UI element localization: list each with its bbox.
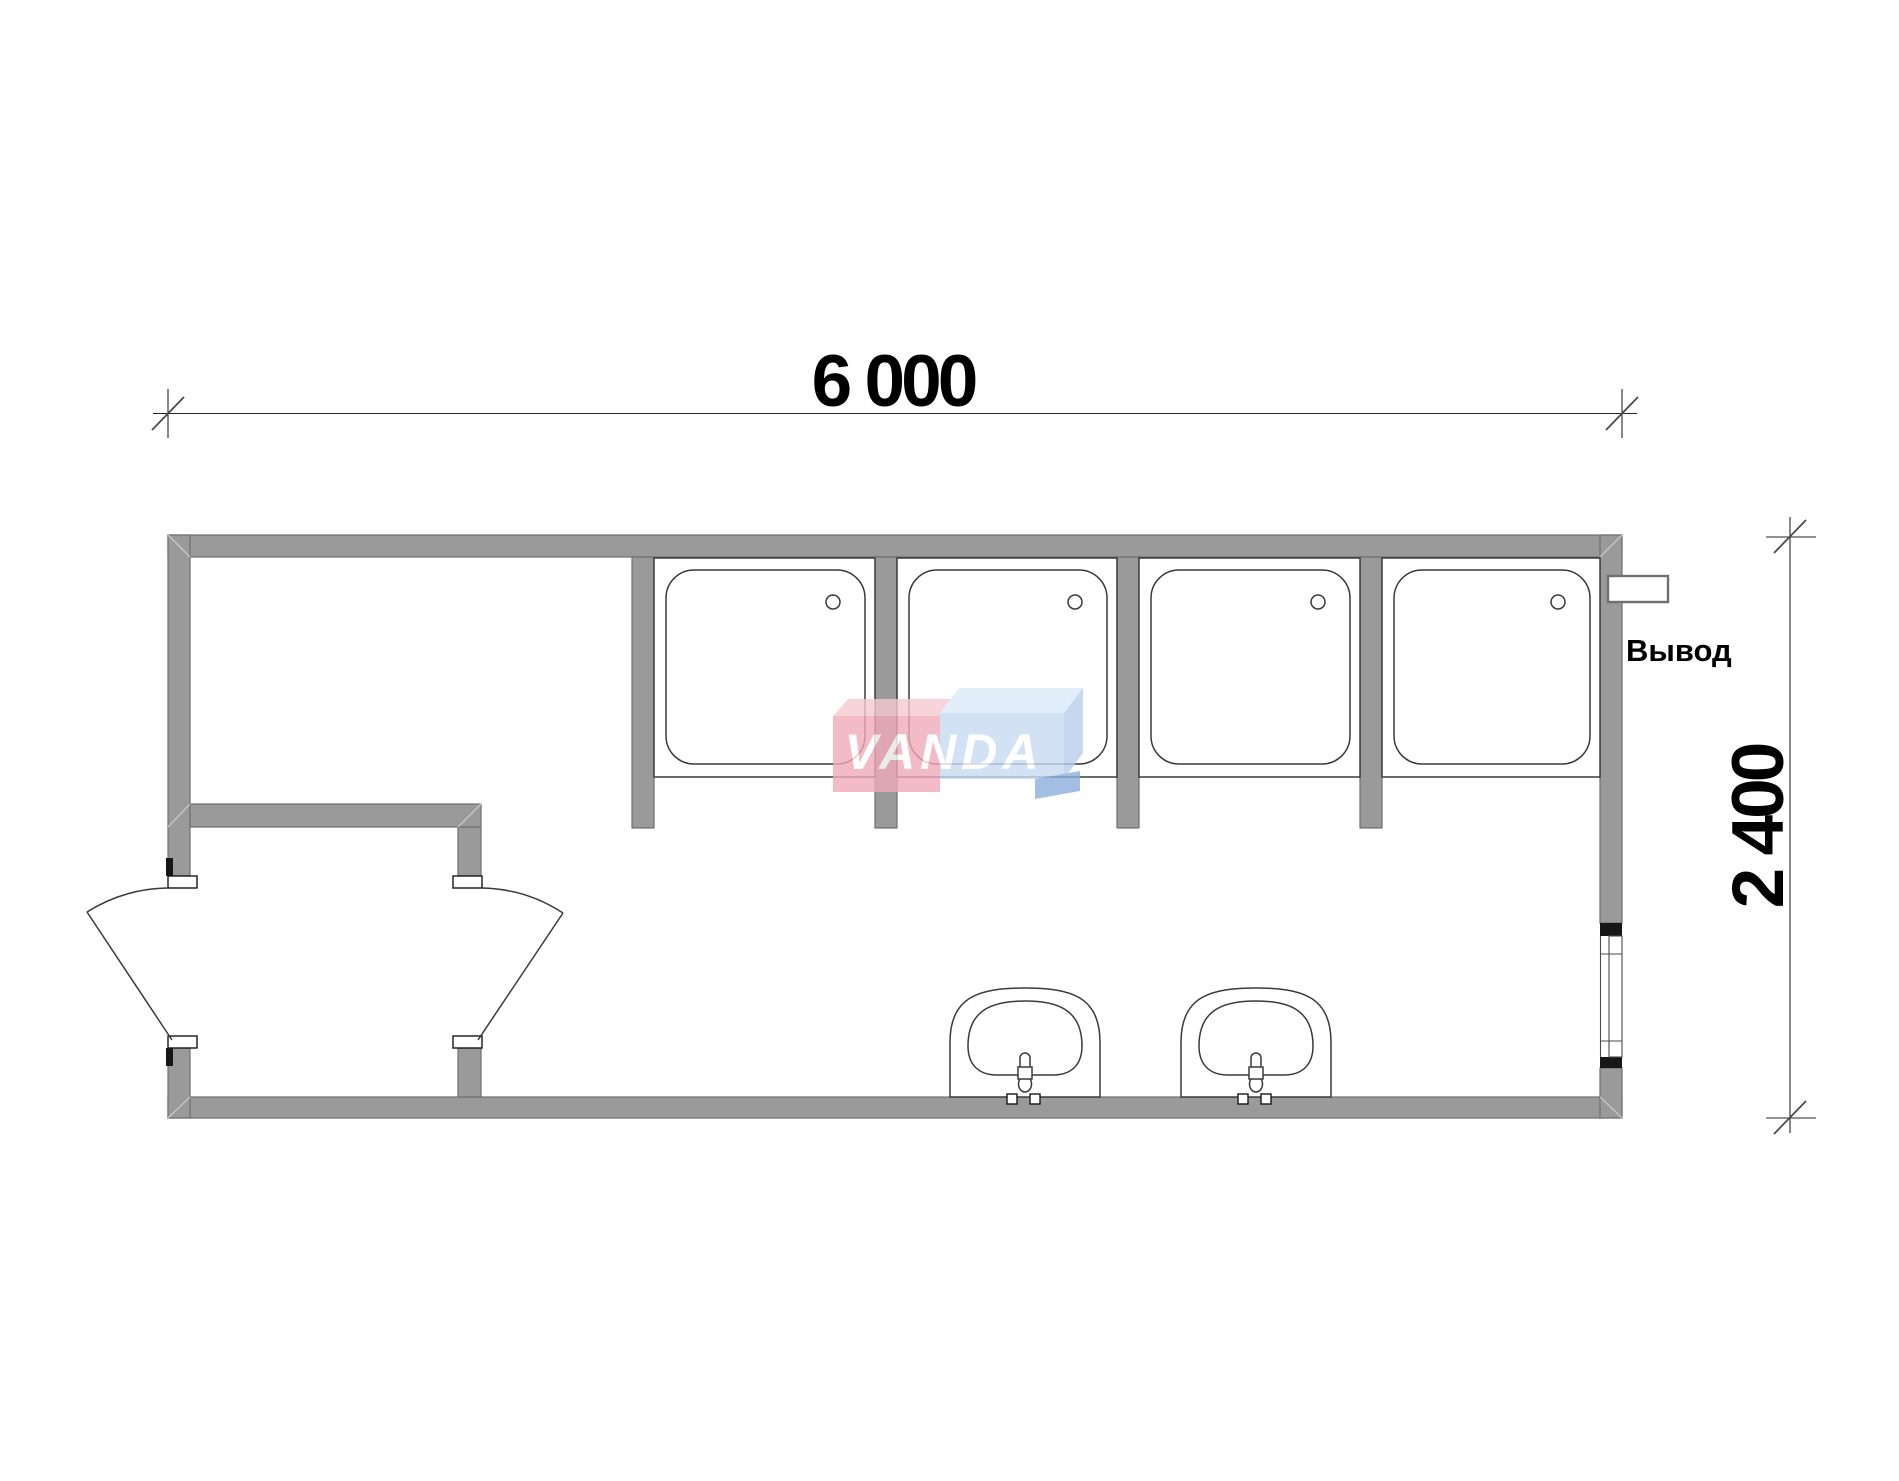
wash-basin-2 [1181,988,1331,1104]
shower-stall-4 [1382,558,1600,777]
door-jamb [453,876,482,888]
vestibule-wall-stub [458,1048,481,1097]
door-swing-arc [87,888,168,912]
faucet-mixer-icon [1249,1067,1263,1079]
vestibule-wall-vertical [458,827,481,876]
drain-icon [1311,595,1325,609]
logo-box-pink-top [833,699,955,716]
dimension-width: 6 000 [152,341,1638,438]
basin-bracket [1261,1094,1271,1104]
wall-top [168,535,1622,557]
utility-outlet: Вывод [1608,576,1732,668]
entrance-door [87,858,197,1066]
window [1600,923,1622,1068]
wall-right-lower [1600,1068,1622,1118]
vestibule-door [453,876,563,1048]
watermark-logo: VANDA [833,688,1083,799]
door-frame-mark [166,1048,173,1066]
wall-bottom [168,1097,1622,1118]
wash-basin-1 [950,988,1100,1104]
shower-partition-3 [1117,557,1139,828]
logo-box-blue-top [940,688,1083,713]
dimension-height-label: 2 400 [1718,744,1799,908]
dimension-height: 2 400 [1718,517,1816,1134]
door-leaf [87,912,172,1040]
outlet-pipe [1608,576,1668,602]
basin-bracket [1007,1094,1017,1104]
shower-stall-3 [1139,558,1360,777]
door-frame-mark [166,858,173,876]
door-jamb [168,876,197,888]
window-cap [1600,923,1622,936]
shower-partition-4 [1360,557,1382,828]
basin-bracket [1030,1094,1040,1104]
vestibule-wall-horizontal [190,804,481,827]
basin-bracket [1238,1094,1248,1104]
door-jamb [453,1036,482,1048]
faucet-mixer-icon [1018,1067,1032,1079]
drain-icon [1068,595,1082,609]
drain-icon [1551,595,1565,609]
wall-left-upper [168,535,190,876]
outlet-label: Вывод [1626,633,1732,668]
floor-plan: Вывод 6 000 2 400 VANDA [0,0,1899,1481]
drawing-canvas: Вывод 6 000 2 400 VANDA [0,0,1899,1481]
drain-icon [826,595,840,609]
dimension-width-label: 6 000 [812,341,976,422]
wash-basins [950,988,1331,1104]
watermark-text: VANDA [844,724,1043,780]
door-swing-arc [482,888,563,913]
window-cap [1600,1057,1622,1068]
door-jamb [168,1036,197,1048]
door-leaf [478,913,563,1040]
shower-partition-1 [632,557,654,828]
